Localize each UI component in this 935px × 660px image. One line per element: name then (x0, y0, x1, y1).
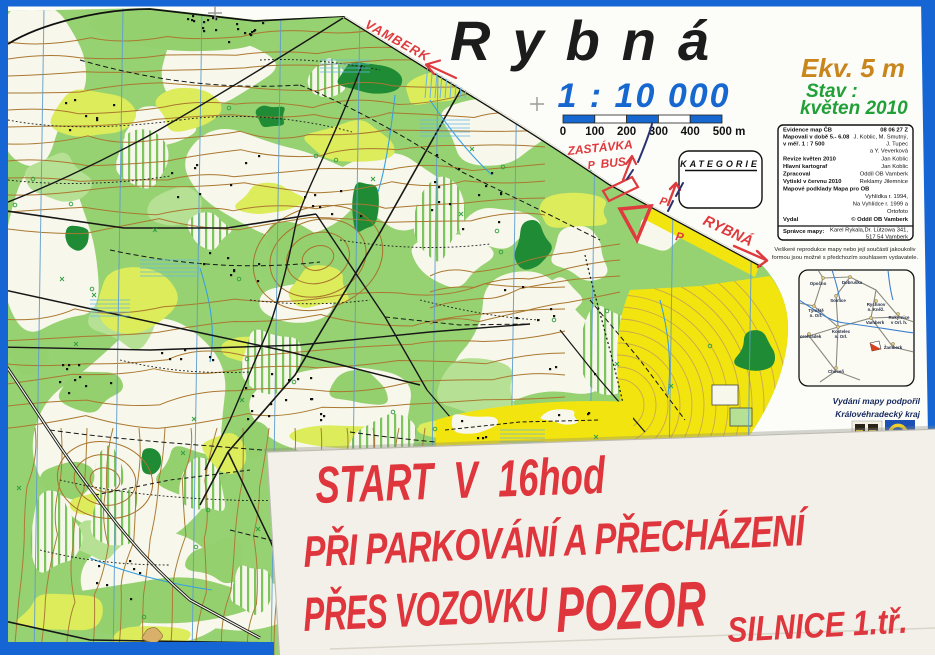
svg-text:n. Orl.: n. Orl. (835, 334, 848, 339)
svg-text:Borohrádek: Borohrádek (797, 334, 822, 339)
svg-text:Vydání mapy podpořil: Vydání mapy podpořil (833, 396, 921, 406)
svg-text:Ekv. 5 m: Ekv. 5 m (801, 53, 905, 83)
svg-text:Vamberk: Vamberk (866, 320, 885, 325)
svg-text:Oddíl OB Vamberk: Oddíl OB Vamberk (860, 172, 908, 178)
svg-text:Reklamy Jilemnice: Reklamy Jilemnice (860, 179, 908, 185)
svg-text:100: 100 (585, 126, 604, 138)
svg-text:500 m: 500 m (713, 126, 746, 138)
svg-text:Královéhradecký kraj: Královéhradecký kraj (835, 409, 920, 419)
svg-text:Zpracoval: Zpracoval (783, 172, 811, 178)
svg-text:Správce mapy:: Správce mapy: (783, 229, 824, 235)
svg-text:0: 0 (560, 126, 566, 138)
svg-text:květen 2010: květen 2010 (800, 98, 908, 119)
svg-text:200: 200 (617, 126, 636, 138)
svg-text:Evidence map ČB: Evidence map ČB (783, 127, 832, 134)
svg-text:v měř. 1 : 7 500: v měř. 1 : 7 500 (783, 142, 825, 148)
svg-text:Na Vyhlídce r. 1999 a: Na Vyhlídce r. 1999 a (853, 202, 909, 208)
svg-text:400: 400 (681, 126, 700, 138)
svg-text:Rybná: Rybná (450, 9, 731, 72)
svg-text:Choceň: Choceň (828, 369, 844, 374)
svg-text:n. Kněž.: n. Kněž. (868, 307, 885, 312)
svg-text:KATEGORIE: KATEGORIE (680, 159, 760, 169)
svg-text:Mapovali v době 5.- 6.08: Mapovali v době 5.- 6.08 (783, 135, 850, 141)
svg-text:J. Tupec: J. Tupec (886, 142, 908, 148)
svg-text:Mapové podklady Mapa pro OB: Mapové podklady Mapa pro OB (783, 187, 869, 193)
svg-text:Žamberk: Žamberk (884, 345, 903, 350)
svg-text:J. Koblic, M. Smutný,: J. Koblic, M. Smutný, (854, 135, 909, 141)
svg-text:Vytiskl v červnu 2010: Vytiskl v červnu 2010 (783, 179, 841, 185)
svg-text:Karel Rykala,Dr. Lützowa 341,: Karel Rykala,Dr. Lützowa 341, (830, 228, 908, 234)
svg-text:Jan Koblic: Jan Koblic (881, 157, 908, 163)
svg-text:v Orl. h.: v Orl. h. (891, 320, 907, 325)
svg-text:formou jsou možné s předchozím: formou jsou možné s předchozím souhlasem… (772, 255, 919, 261)
svg-text:08 06 27 Z: 08 06 27 Z (880, 128, 908, 134)
svg-text:Opočno: Opočno (810, 281, 827, 286)
svg-text:POZOR: POZOR (555, 569, 708, 646)
svg-text:Dobruška: Dobruška (842, 280, 863, 285)
svg-text:1 : 10 000: 1 : 10 000 (557, 77, 730, 115)
svg-text:PŘES VOZOVKU: PŘES VOZOVKU (302, 577, 550, 642)
svg-text:BUS: BUS (600, 154, 627, 171)
svg-text:Vyhlídka r. 1994,: Vyhlídka r. 1994, (865, 194, 908, 200)
svg-text:Solnice: Solnice (830, 298, 846, 303)
svg-text:Jan Koblic: Jan Koblic (881, 164, 908, 170)
svg-text:n. Orl.: n. Orl. (810, 313, 823, 318)
svg-text:Vydal: Vydal (783, 217, 799, 223)
svg-text:Hlavní kartograf: Hlavní kartograf (783, 164, 827, 170)
svg-text:a Y. Veverková: a Y. Veverková (870, 149, 909, 155)
svg-text:© Oddíl OB Vamberk: © Oddíl OB Vamberk (851, 216, 909, 223)
svg-text:Ortofoto: Ortofoto (887, 209, 908, 215)
svg-text:517 54 Vamberk: 517 54 Vamberk (866, 235, 908, 241)
svg-text:Veškeré reprodukce mapy nebo j: Veškeré reprodukce mapy nebo její součás… (774, 247, 915, 253)
svg-text:Revize květen 2010: Revize květen 2010 (783, 157, 836, 163)
svg-text:START V 16hod: START V 16hod (314, 445, 607, 514)
